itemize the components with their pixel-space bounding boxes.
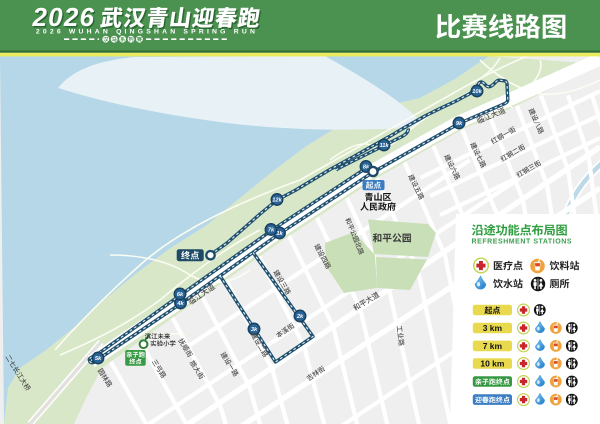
svg-text:7 km: 7 km — [483, 341, 503, 351]
svg-text:3 km: 3 km — [483, 323, 503, 333]
svg-text:4k: 4k — [176, 301, 184, 307]
svg-text:2k: 2k — [296, 314, 304, 320]
svg-text:10k: 10k — [472, 89, 482, 95]
svg-text:7k: 7k — [268, 228, 275, 234]
svg-text:12k: 12k — [272, 198, 282, 204]
svg-text:REFRESHMENT STATIONS: REFRESHMENT STATIONS — [472, 239, 573, 246]
svg-text:2026: 2026 — [32, 2, 96, 32]
svg-text:6k: 6k — [177, 292, 184, 298]
svg-text:1k: 1k — [276, 231, 283, 237]
svg-text:2026 WUHAN QINGSHAN SPRING RUN: 2026 WUHAN QINGSHAN SPRING RUN — [36, 29, 258, 36]
svg-text:9k: 9k — [456, 121, 463, 127]
svg-text:5k: 5k — [95, 356, 102, 362]
svg-text:3k: 3k — [251, 327, 258, 333]
svg-text:11k: 11k — [379, 143, 389, 149]
svg-text:10 km: 10 km — [480, 359, 505, 369]
